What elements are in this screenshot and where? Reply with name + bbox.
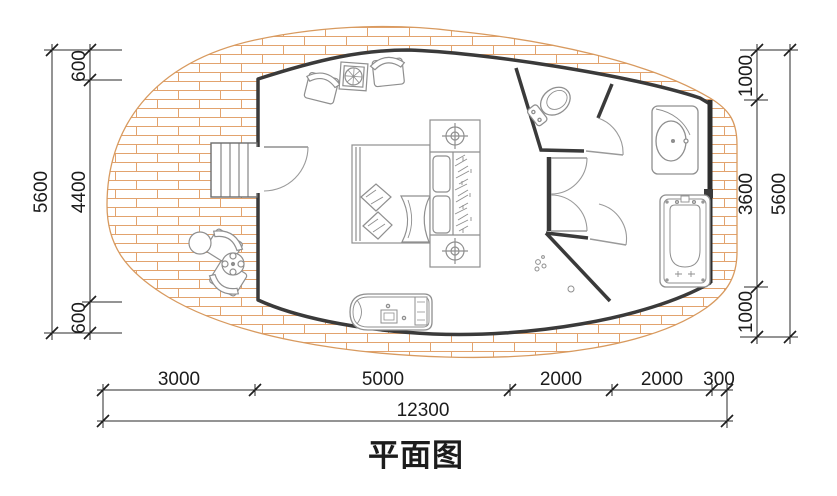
dim-bottom-seg-2: 2000 (540, 369, 582, 390)
dim-bottom-seg-3: 2000 (641, 369, 683, 390)
lounge-bench (350, 294, 432, 330)
dim-right-seg-1: 3600 (736, 173, 757, 215)
dim-bottom-seg-4: 300 (703, 369, 735, 390)
dim-bottom-total: 12300 (397, 400, 450, 421)
deck-stool (189, 232, 211, 254)
deck-table-flower (222, 253, 244, 275)
dim-left-total: 5600 (31, 171, 52, 213)
dim-left-seg-2: 600 (69, 302, 90, 334)
floor-plan-title: 平面图 (368, 438, 464, 473)
square-side-table (339, 62, 368, 91)
entry-steps (211, 143, 257, 197)
dim-left-seg-0: 600 (69, 50, 90, 82)
washbasin (652, 106, 698, 174)
floor-plan-page: 5600 600 4400 600 1000 3600 1000 5600 30… (0, 0, 837, 496)
dim-left-seg-1: 4400 (69, 171, 90, 213)
dim-right-total: 5600 (769, 173, 790, 215)
bathtub (660, 195, 710, 287)
dim-bottom-seg-1: 5000 (362, 369, 404, 390)
dim-right-seg-2: 1000 (736, 291, 757, 333)
dim-right-seg-0: 1000 (736, 55, 757, 97)
dim-bottom-seg-0: 3000 (158, 369, 200, 390)
armchair-top-right (370, 56, 407, 87)
double-bed (352, 145, 430, 243)
wardrobe-with-hangers (430, 120, 480, 267)
floor-plan-canvas: 5600 600 4400 600 1000 3600 1000 5600 30… (0, 0, 837, 496)
